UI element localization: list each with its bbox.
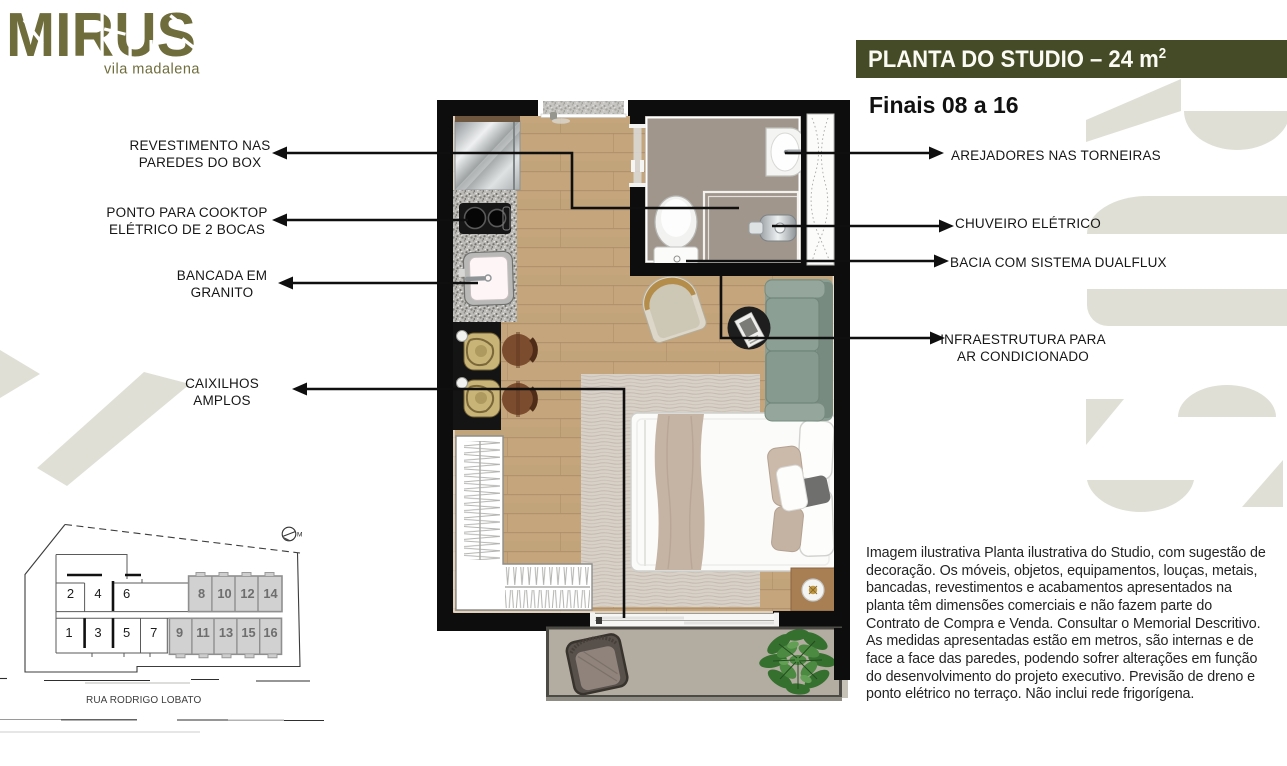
svg-text:1: 1 <box>65 625 72 640</box>
svg-text:10: 10 <box>217 586 231 601</box>
svg-text:14: 14 <box>263 586 278 601</box>
svg-text:3: 3 <box>94 625 101 640</box>
svg-text:15: 15 <box>241 625 255 640</box>
svg-text:16: 16 <box>263 625 277 640</box>
svg-text:9: 9 <box>176 625 183 640</box>
svg-text:M: M <box>297 532 302 539</box>
svg-text:4: 4 <box>94 586 101 601</box>
svg-text:6: 6 <box>123 586 130 601</box>
svg-text:2: 2 <box>67 586 74 601</box>
svg-text:7: 7 <box>150 625 157 640</box>
svg-text:11: 11 <box>196 625 210 640</box>
svg-text:8: 8 <box>198 586 205 601</box>
svg-text:13: 13 <box>219 625 233 640</box>
svg-text:RUA RODRIGO LOBATO: RUA RODRIGO LOBATO <box>86 695 201 706</box>
svg-text:12: 12 <box>240 586 254 601</box>
svg-text:5: 5 <box>123 625 130 640</box>
